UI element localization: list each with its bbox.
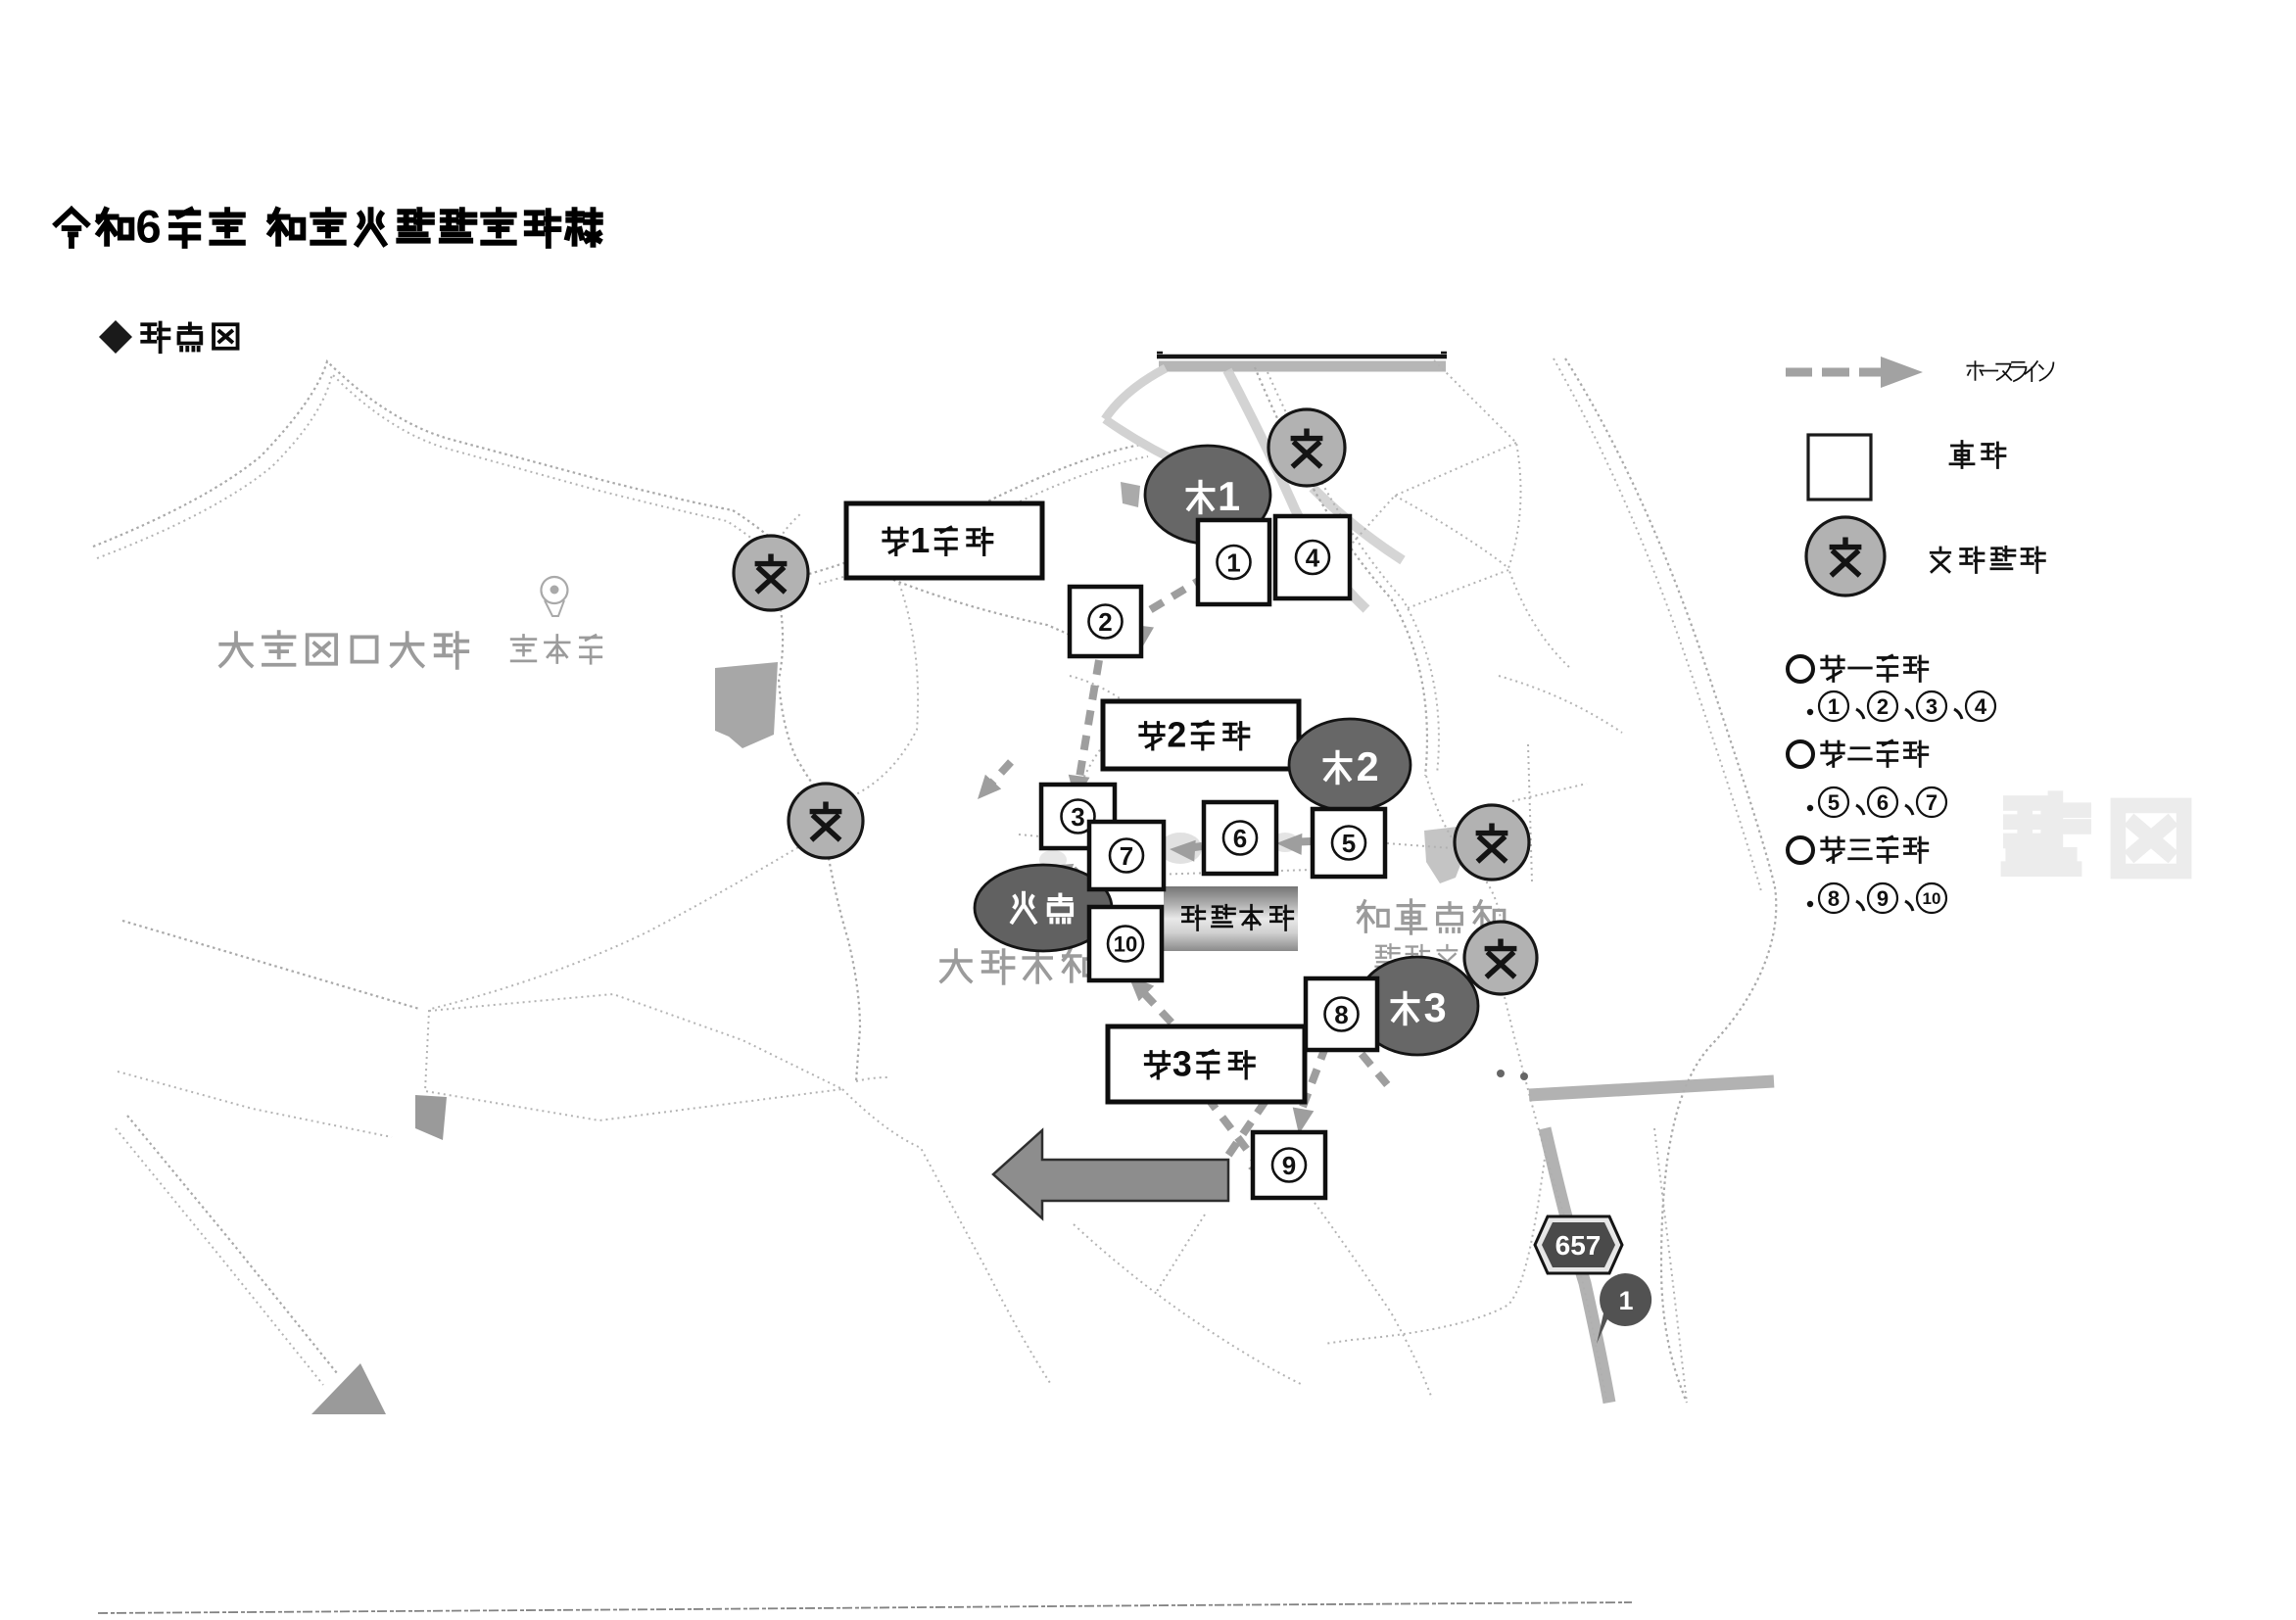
- svg-text:1: 1: [1218, 474, 1240, 519]
- svg-text:5: 5: [1342, 829, 1356, 858]
- svg-text:8: 8: [1828, 886, 1840, 911]
- svg-text:4: 4: [1975, 694, 1987, 719]
- svg-text:3: 3: [1172, 1044, 1192, 1083]
- svg-text:1: 1: [1618, 1286, 1633, 1315]
- svg-text:7: 7: [1926, 790, 1937, 815]
- svg-text:9: 9: [1877, 886, 1889, 911]
- svg-text:2: 2: [1167, 715, 1186, 754]
- svg-text:10: 10: [1114, 931, 1137, 956]
- svg-text:6: 6: [1233, 824, 1247, 853]
- svg-text:2: 2: [1877, 694, 1889, 719]
- svg-text:3: 3: [1424, 985, 1447, 1030]
- svg-text:5: 5: [1828, 790, 1840, 815]
- svg-text:6: 6: [1877, 790, 1889, 815]
- svg-text:657: 657: [1555, 1230, 1602, 1261]
- svg-text:9: 9: [1282, 1151, 1296, 1180]
- svg-text:7: 7: [1120, 841, 1133, 871]
- svg-text:3: 3: [1071, 802, 1084, 832]
- svg-text:10: 10: [1923, 889, 1941, 908]
- svg-text:2: 2: [1098, 607, 1112, 637]
- svg-text:1: 1: [1828, 694, 1840, 719]
- svg-text:6: 6: [136, 201, 162, 253]
- svg-text:8: 8: [1334, 1000, 1348, 1029]
- svg-text:1: 1: [910, 521, 930, 560]
- svg-text:3: 3: [1926, 694, 1937, 719]
- svg-text:1: 1: [1226, 548, 1240, 577]
- svg-text:2: 2: [1357, 744, 1379, 789]
- svg-text:4: 4: [1306, 543, 1320, 572]
